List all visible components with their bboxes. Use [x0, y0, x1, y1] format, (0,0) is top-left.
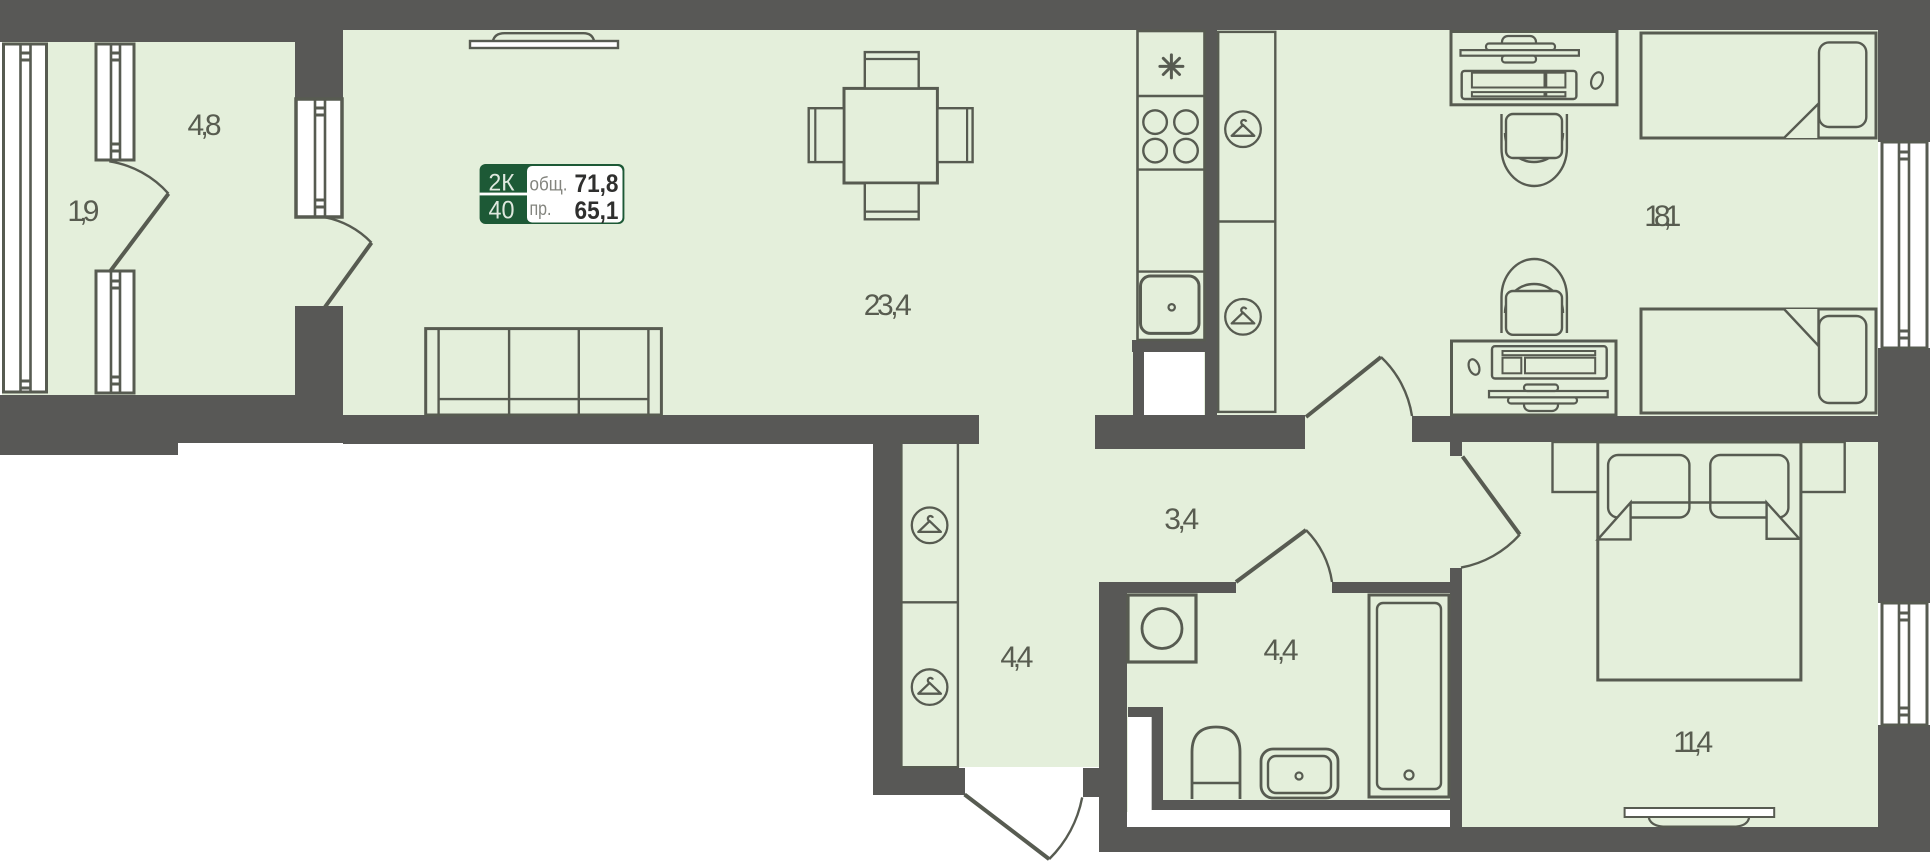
svg-text:23,4: 23,4 — [864, 289, 912, 322]
svg-text:11,4: 11,4 — [1673, 726, 1713, 759]
svg-text:3,4: 3,4 — [1164, 503, 1199, 536]
svg-text:40: 40 — [489, 197, 515, 225]
svg-text:2К: 2К — [489, 170, 515, 197]
svg-text:4,4: 4,4 — [1264, 634, 1299, 667]
svg-text:1,9: 1,9 — [67, 195, 99, 228]
svg-text:пр.: пр. — [530, 199, 552, 220]
svg-text:общ.: общ. — [530, 175, 568, 196]
svg-text:18,1: 18,1 — [1644, 200, 1681, 233]
svg-text:71,8: 71,8 — [575, 170, 619, 198]
svg-text:4,8: 4,8 — [188, 109, 222, 142]
svg-text:4,4: 4,4 — [1000, 641, 1033, 674]
svg-text:65,1: 65,1 — [575, 197, 619, 225]
